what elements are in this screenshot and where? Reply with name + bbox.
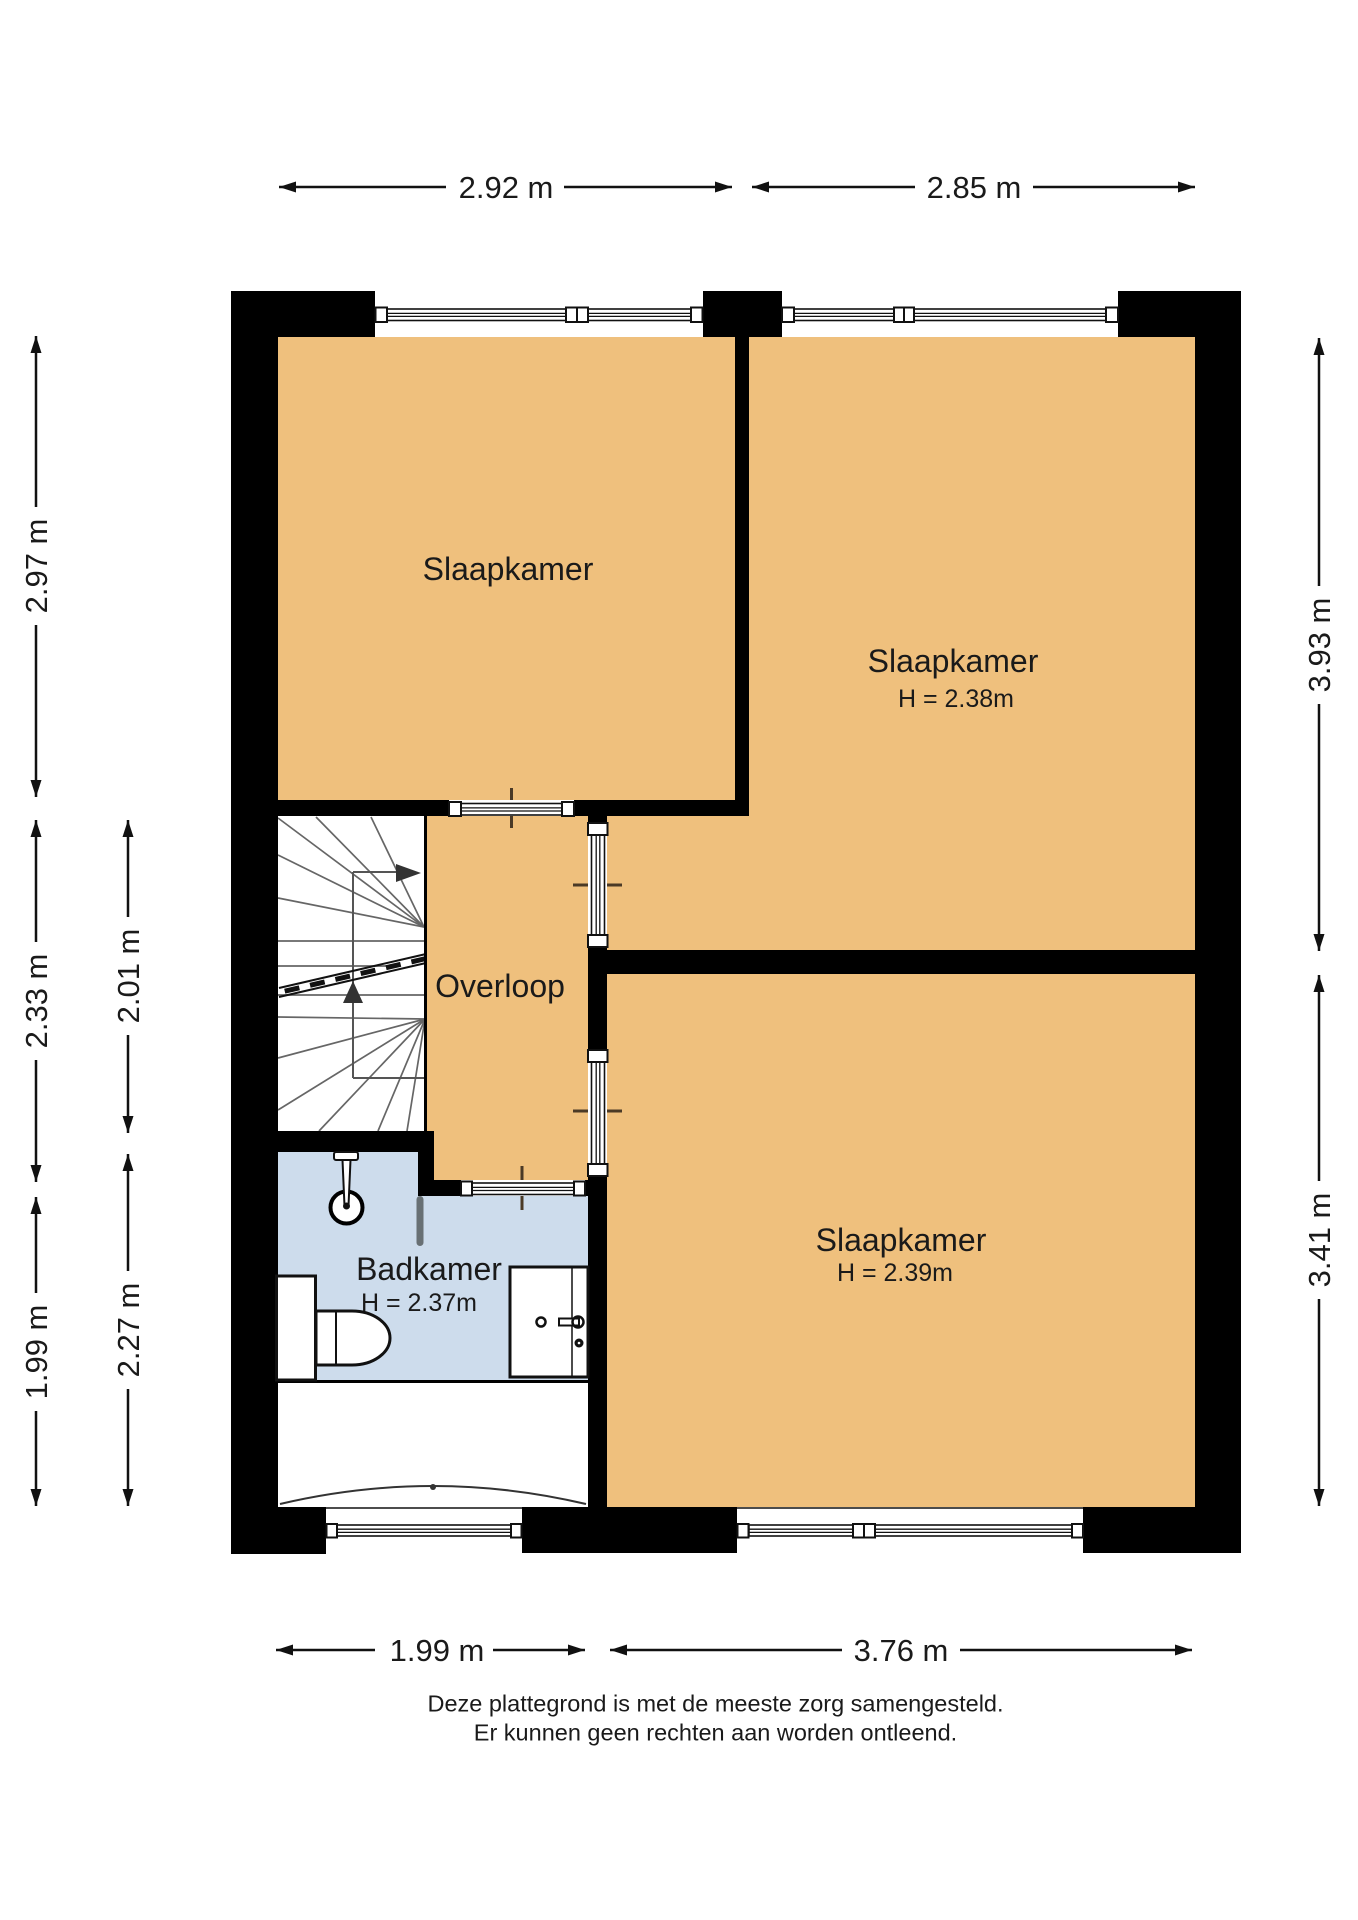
svg-text:2.85 m: 2.85 m: [927, 170, 1022, 205]
svg-text:Badkamer: Badkamer: [356, 1251, 502, 1287]
svg-text:2.97 m: 2.97 m: [19, 519, 54, 614]
svg-text:Slaapkamer: Slaapkamer: [868, 643, 1039, 679]
svg-text:Overloop: Overloop: [435, 968, 565, 1004]
svg-text:H = 2.39m: H = 2.39m: [837, 1259, 953, 1287]
svg-text:Deze plattegrond is met de mee: Deze plattegrond is met de meeste zorg s…: [427, 1691, 1003, 1717]
svg-text:2.27 m: 2.27 m: [111, 1283, 146, 1378]
svg-text:2.33 m: 2.33 m: [19, 954, 54, 1049]
svg-text:H = 2.38m: H = 2.38m: [898, 685, 1014, 713]
svg-text:Slaapkamer: Slaapkamer: [816, 1222, 987, 1258]
svg-text:3.41 m: 3.41 m: [1302, 1193, 1337, 1288]
svg-text:Er kunnen geen rechten aan wor: Er kunnen geen rechten aan worden ontlee…: [474, 1720, 957, 1746]
svg-text:2.01 m: 2.01 m: [111, 929, 146, 1024]
svg-text:3.76 m: 3.76 m: [854, 1633, 949, 1668]
svg-text:H = 2.37m: H = 2.37m: [361, 1289, 477, 1317]
svg-text:1.99 m: 1.99 m: [19, 1305, 54, 1400]
svg-text:2.92 m: 2.92 m: [459, 170, 554, 205]
svg-text:Slaapkamer: Slaapkamer: [423, 551, 594, 587]
svg-text:3.93 m: 3.93 m: [1302, 598, 1337, 693]
svg-text:1.99 m: 1.99 m: [390, 1633, 485, 1668]
